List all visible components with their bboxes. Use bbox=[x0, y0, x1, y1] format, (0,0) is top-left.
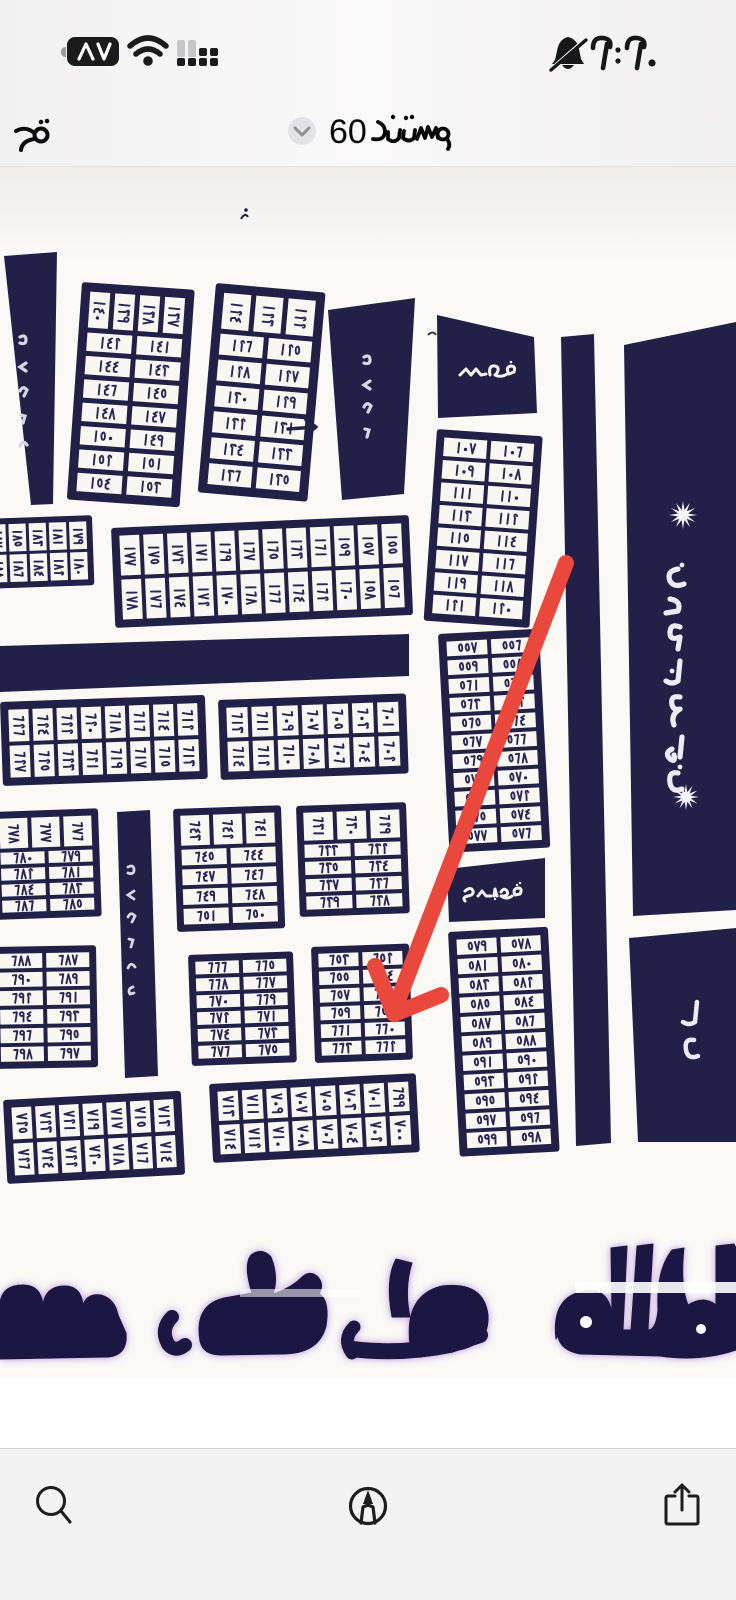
svg-text:60: 60 bbox=[329, 113, 367, 151]
